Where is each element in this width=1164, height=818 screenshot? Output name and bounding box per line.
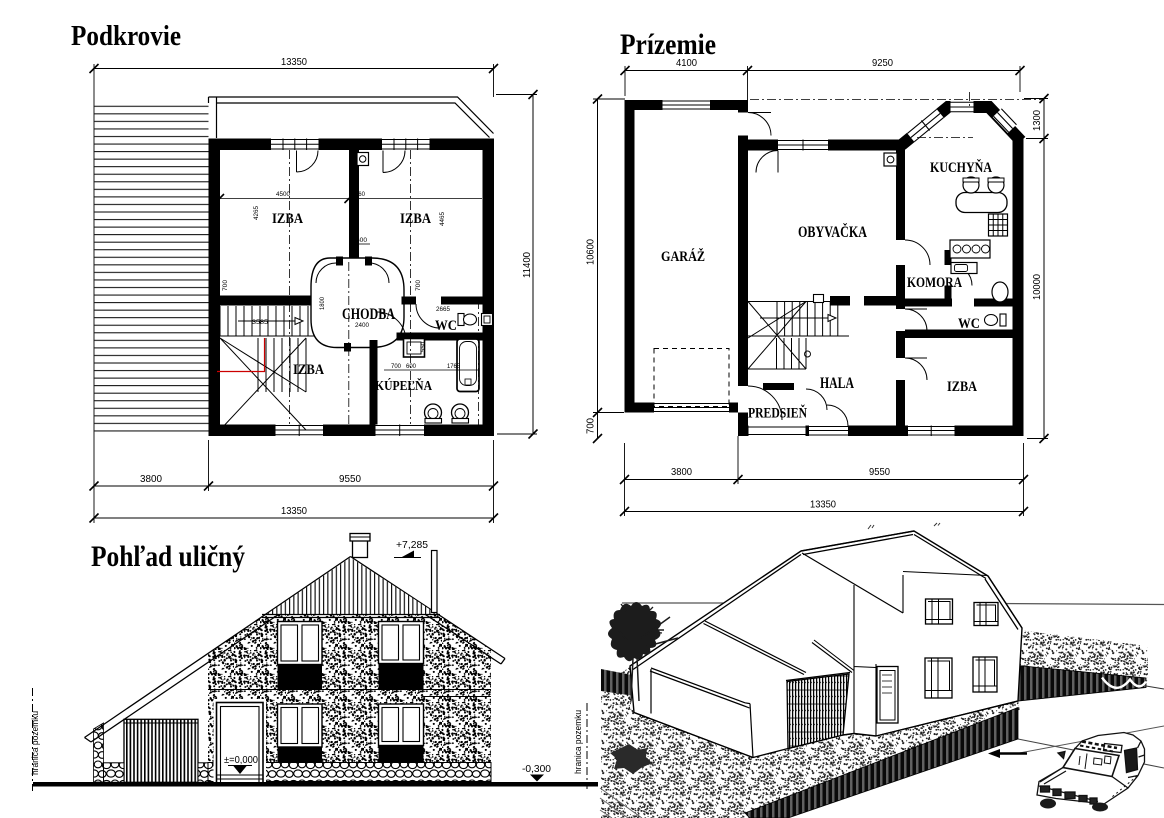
svg-text:11400: 11400 — [521, 252, 533, 278]
svg-text:CHODBA: CHODBA — [342, 306, 395, 323]
svg-text:550: 550 — [420, 342, 427, 352]
svg-text:4265: 4265 — [253, 206, 260, 220]
svg-text:KÚPEĽŇA: KÚPEĽŇA — [375, 377, 433, 394]
svg-text:hranica pozemku: hranica pozemku — [573, 710, 583, 774]
svg-text:9550: 9550 — [339, 473, 361, 485]
svg-text:Podkrovie: Podkrovie — [71, 20, 181, 52]
svg-text:IZBA: IZBA — [293, 362, 324, 378]
svg-text:IZBA: IZBA — [400, 211, 431, 227]
svg-text:GARÁŽ: GARÁŽ — [661, 248, 705, 265]
svg-text:1300: 1300 — [1031, 110, 1043, 131]
svg-text:1160: 1160 — [352, 191, 365, 198]
svg-text:±=0,000: ±=0,000 — [224, 754, 258, 766]
svg-text:10000: 10000 — [1031, 274, 1043, 300]
svg-text:Pohľad uličný: Pohľad uličný — [91, 540, 245, 573]
svg-text:3800: 3800 — [671, 466, 692, 478]
svg-text:+7,285: +7,285 — [396, 539, 428, 551]
svg-text:2665: 2665 — [436, 306, 450, 313]
svg-text:700: 700 — [585, 418, 597, 434]
svg-text:-0,300: -0,300 — [522, 763, 551, 775]
svg-text:3585: 3585 — [252, 319, 268, 326]
svg-text:OBYVAČKA: OBYVAČKA — [798, 222, 867, 241]
svg-text:hranica pozemku: hranica pozemku — [30, 711, 40, 775]
svg-text:KUCHYŇA: KUCHYŇA — [930, 159, 992, 176]
svg-text:1800: 1800 — [319, 297, 326, 310]
svg-text:KOMORA: KOMORA — [907, 275, 962, 291]
svg-text:PREDSIEŇ: PREDSIEŇ — [748, 405, 807, 422]
svg-text:700: 700 — [391, 363, 401, 370]
svg-text:4465: 4465 — [439, 212, 446, 226]
svg-text:13350: 13350 — [810, 499, 836, 511]
svg-text:1765: 1765 — [447, 363, 460, 370]
svg-text:13350: 13350 — [281, 56, 307, 68]
svg-text:3800: 3800 — [140, 473, 162, 485]
svg-text:WC: WC — [435, 318, 457, 334]
svg-text:13350: 13350 — [281, 505, 307, 517]
svg-text:HALA: HALA — [820, 375, 854, 392]
svg-text:600: 600 — [406, 363, 416, 370]
svg-text:4500: 4500 — [276, 191, 290, 198]
svg-text:Prízemie: Prízemie — [620, 28, 716, 61]
svg-text:IZBA: IZBA — [947, 379, 977, 395]
svg-text:4100: 4100 — [676, 57, 697, 69]
svg-text:10600: 10600 — [585, 239, 597, 265]
svg-text:2400: 2400 — [355, 322, 369, 329]
svg-text:700: 700 — [415, 280, 422, 291]
svg-text:IZBA: IZBA — [272, 211, 303, 227]
svg-text:600: 600 — [356, 237, 367, 244]
svg-text:WC: WC — [958, 316, 980, 332]
svg-text:9550: 9550 — [869, 466, 890, 478]
svg-text:9250: 9250 — [872, 57, 893, 69]
svg-text:700: 700 — [222, 280, 229, 291]
